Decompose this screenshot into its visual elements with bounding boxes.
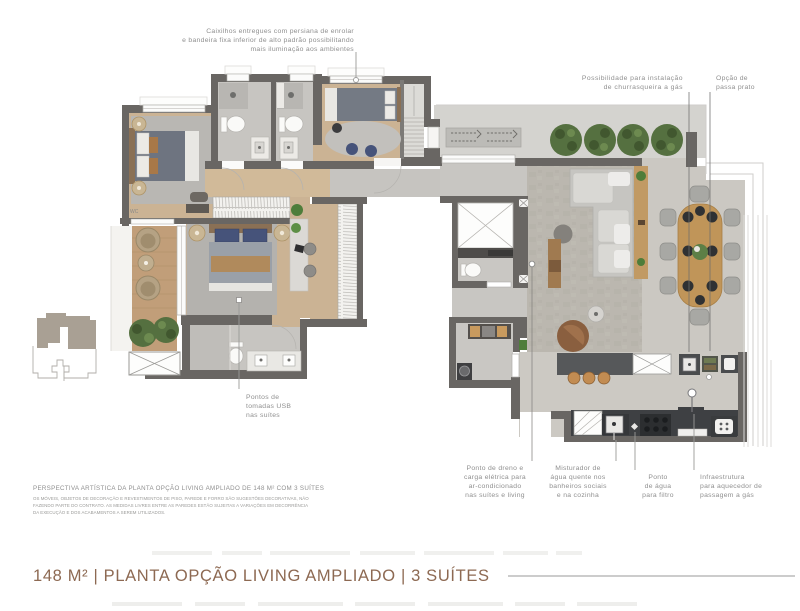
svg-text:Ponto de dreno e: Ponto de dreno e — [467, 465, 524, 472]
svg-text:de água: de água — [645, 483, 672, 490]
svg-text:carga elétrica para: carga elétrica para — [464, 474, 526, 481]
svg-text:148 M² | PLANTA OPÇÃO LIVING A: 148 M² | PLANTA OPÇÃO LIVING AMPLIADO | … — [33, 565, 490, 585]
svg-text:Opção de: Opção de — [716, 75, 748, 82]
svg-text:DA EXECUÇÃO E DOS ACABAMENTOS: DA EXECUÇÃO E DOS ACABAMENTOS A SEREM UT… — [33, 510, 165, 515]
svg-text:nas suítes: nas suítes — [246, 412, 280, 419]
svg-text:PERSPECTIVA ARTÍSTICA DA PLANT: PERSPECTIVA ARTÍSTICA DA PLANTA OPÇÃO LI… — [33, 485, 324, 492]
svg-text:WC: WC — [130, 209, 139, 215]
svg-text:mais iluminação aos ambientes: mais iluminação aos ambientes — [250, 46, 354, 53]
svg-text:OS MÓVEIS, OBJETOS DE DECORAÇÃ: OS MÓVEIS, OBJETOS DE DECORAÇÃO E REVEST… — [33, 496, 309, 501]
svg-text:Caixilhos entregues com persia: Caixilhos entregues com persiana de enro… — [206, 28, 354, 35]
svg-text:Possibilidade para instalação: Possibilidade para instalação — [582, 75, 683, 82]
svg-text:Misturador de: Misturador de — [555, 465, 600, 472]
svg-text:água quente nos: água quente nos — [550, 474, 605, 481]
svg-text:Infraestrutura: Infraestrutura — [700, 474, 745, 481]
svg-text:para filtro: para filtro — [642, 492, 674, 499]
svg-text:e bandeira fixa inferior de al: e bandeira fixa inferior de alto padrão … — [182, 37, 354, 44]
svg-text:passa prato: passa prato — [716, 84, 755, 91]
svg-text:para aquecedor de: para aquecedor de — [700, 483, 762, 490]
svg-text:Pontos de: Pontos de — [246, 394, 279, 401]
svg-text:FAZENDO PARTE DO CONTRATO. AS: FAZENDO PARTE DO CONTRATO. AS MEDIDAS LI… — [33, 503, 308, 508]
svg-text:tomadas USB: tomadas USB — [246, 403, 291, 410]
svg-text:ar-condicionado: ar-condicionado — [469, 483, 522, 490]
svg-text:banheiros sociais: banheiros sociais — [549, 483, 607, 490]
svg-text:Ponto: Ponto — [648, 474, 667, 481]
svg-text:passagem a gás: passagem a gás — [700, 492, 754, 499]
svg-text:nas suítes e living: nas suítes e living — [465, 492, 525, 499]
svg-text:e na cozinha: e na cozinha — [557, 492, 599, 499]
svg-text:de churrasqueira a gás: de churrasqueira a gás — [604, 84, 684, 91]
